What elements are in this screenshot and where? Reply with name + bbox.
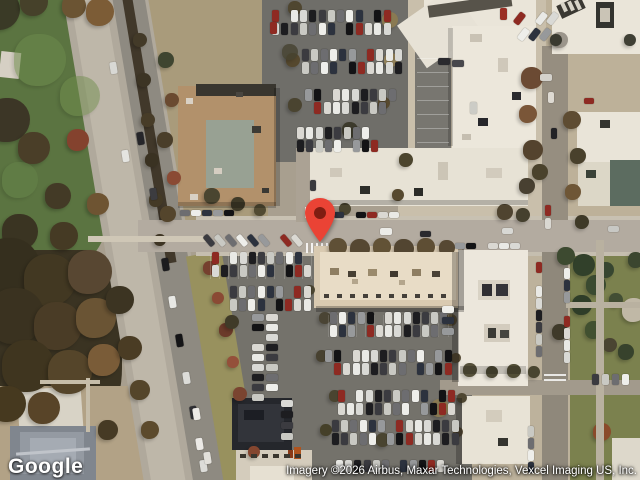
google-logo[interactable]: Google	[8, 455, 83, 479]
pin-body	[305, 198, 335, 242]
map-canvas[interactable]: Google Imagery ©2026 Airbus, Maxar Techn…	[0, 0, 640, 480]
pin-dot	[314, 207, 326, 219]
location-pin[interactable]	[305, 198, 335, 242]
imagery-attribution: Imagery ©2026 Airbus, Maxar Technologies…	[286, 465, 637, 477]
